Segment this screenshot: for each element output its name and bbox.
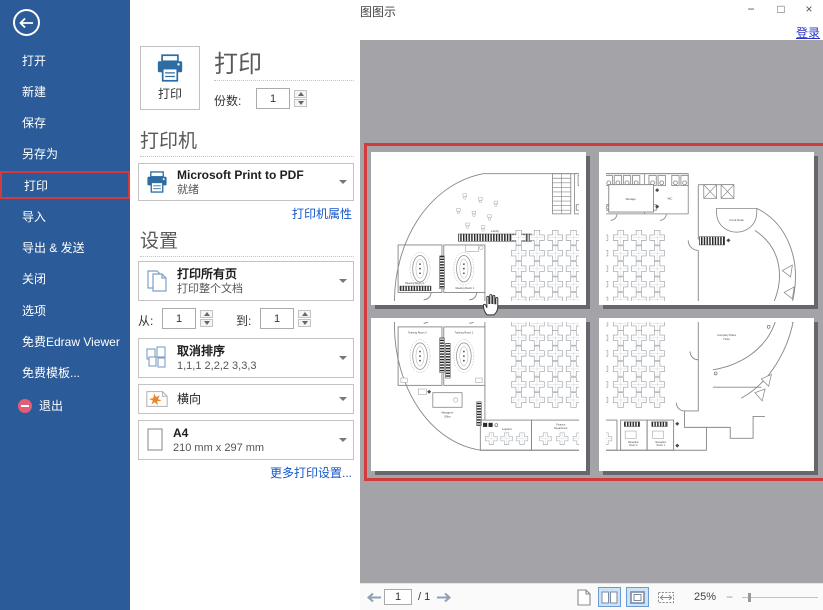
- previous-page-button[interactable]: [366, 590, 382, 608]
- chevron-down-icon: [339, 279, 347, 283]
- fit-page-icon: [657, 591, 675, 604]
- zoom-out-button[interactable]: −: [726, 590, 733, 604]
- printer-name: Microsoft Print to PDF: [177, 168, 331, 183]
- separator: [140, 256, 354, 257]
- copies-stepper: [256, 88, 307, 109]
- printer-status: 就绪: [177, 183, 331, 197]
- printer-properties-link[interactable]: 打印机属性: [292, 205, 352, 222]
- sidebar-item-options[interactable]: 选项: [0, 298, 130, 326]
- collate-select[interactable]: 取消排序 1,1,1 2,2,2 3,3,3: [138, 338, 354, 378]
- back-arrow-icon: [19, 17, 34, 29]
- from-stepper: [162, 308, 213, 329]
- single-page-view-button[interactable]: [626, 587, 649, 607]
- print-heading: 打印: [214, 44, 262, 79]
- page-range-sub: 打印整个文档: [177, 282, 331, 296]
- preview-page-3[interactable]: [371, 318, 586, 471]
- single-page-icon: [630, 591, 645, 604]
- floor-plan-page-1: [378, 156, 579, 301]
- sidebar-item-free-templates[interactable]: 免费模板...: [0, 360, 130, 388]
- copies-input[interactable]: [256, 88, 290, 109]
- floor-plan-page-4: [606, 322, 807, 467]
- separator: [140, 156, 354, 157]
- copies-label: 份数:: [214, 92, 241, 109]
- sidebar-item-save[interactable]: 保存: [0, 110, 130, 138]
- maximize-button[interactable]: □: [769, 1, 793, 18]
- preview-page-2[interactable]: [599, 152, 814, 305]
- sidebar-item-save-as[interactable]: 另存为: [0, 141, 130, 169]
- left-arrow-icon: [366, 592, 382, 603]
- landscape-icon: [145, 389, 169, 409]
- copies-up-button[interactable]: [294, 90, 307, 98]
- preview-page-1[interactable]: [371, 152, 586, 305]
- printer-icon: [155, 54, 185, 82]
- copies-down-button[interactable]: [294, 99, 307, 107]
- floor-plan-page-3: [378, 322, 579, 467]
- from-down-button[interactable]: [200, 319, 213, 327]
- sidebar-item-close[interactable]: 关闭: [0, 266, 130, 294]
- page-icon: [577, 589, 591, 606]
- preview-page-4[interactable]: [599, 318, 814, 471]
- print-button-label: 打印: [158, 85, 182, 102]
- to-down-button[interactable]: [298, 319, 311, 327]
- preview-status-bar: / 1 25%: [360, 583, 823, 610]
- page-number-input[interactable]: [384, 589, 412, 605]
- hand-cursor: [480, 292, 502, 321]
- sidebar-item-open[interactable]: 打开: [0, 48, 130, 76]
- chevron-down-icon: [339, 356, 347, 360]
- edraw-print-window: 打开 新建 保存 另存为 打印 导入 导出 & 发送 关闭 选项 免费Edraw…: [0, 0, 823, 610]
- exit-label: 退出: [39, 393, 63, 419]
- chevron-down-icon: [339, 180, 347, 184]
- print-preview-canvas[interactable]: [360, 40, 823, 583]
- from-input[interactable]: [162, 308, 196, 329]
- orientation-value: 横向: [177, 392, 331, 407]
- collate-title: 取消排序: [177, 344, 331, 359]
- page-total-label: / 1: [418, 591, 430, 603]
- more-print-settings-link[interactable]: 更多打印设置...: [270, 464, 352, 481]
- sidebar-item-import[interactable]: 导入: [0, 204, 130, 232]
- separator: [214, 80, 354, 81]
- collate-sub: 1,1,1 2,2,2 3,3,3: [177, 359, 331, 373]
- printer-heading: 打印机: [140, 126, 197, 153]
- sidebar-item-exit[interactable]: 退出: [0, 392, 130, 420]
- sidebar-item-new[interactable]: 新建: [0, 79, 130, 107]
- zoom-slider[interactable]: [742, 597, 818, 598]
- right-arrow-icon: [436, 592, 452, 603]
- printer-small-icon: [145, 171, 169, 193]
- zoom-slider-thumb[interactable]: [748, 593, 751, 602]
- multi-page-view-button[interactable]: [598, 587, 621, 607]
- exit-icon: [18, 399, 32, 413]
- print-button[interactable]: 打印: [140, 46, 200, 110]
- sidebar-item-print[interactable]: 打印: [0, 171, 130, 199]
- paper-sub: 210 mm x 297 mm: [173, 441, 331, 455]
- to-stepper: [260, 308, 311, 329]
- login-link[interactable]: 登录: [796, 24, 820, 41]
- fit-to-window-button[interactable]: [654, 587, 677, 607]
- next-page-button[interactable]: [436, 590, 452, 608]
- collate-icon: [145, 345, 169, 371]
- pages-icon: [145, 268, 169, 294]
- page-range-select[interactable]: 打印所有页 打印整个文档: [138, 261, 354, 301]
- floor-plan-page-2: [606, 156, 807, 301]
- chevron-down-icon: [339, 397, 347, 401]
- print-panel: 打印 打印 份数: 打印机 Microsoft Print to PDF: [130, 0, 360, 610]
- new-page-view-button[interactable]: [572, 587, 595, 607]
- two-page-icon: [601, 591, 618, 604]
- minimize-button[interactable]: −: [739, 1, 763, 18]
- paper-title: A4: [173, 426, 331, 441]
- settings-heading: 设置: [140, 226, 178, 253]
- close-button[interactable]: ×: [797, 1, 821, 18]
- from-label: 从:: [138, 312, 153, 329]
- sidebar-item-free-viewer[interactable]: 免费Edraw Viewer: [0, 329, 130, 357]
- printer-select[interactable]: Microsoft Print to PDF 就绪: [138, 163, 354, 201]
- page-range-title: 打印所有页: [177, 267, 331, 282]
- backstage-sidebar: 打开 新建 保存 另存为 打印 导入 导出 & 发送 关闭 选项 免费Edraw…: [0, 0, 130, 610]
- orientation-select[interactable]: 横向: [138, 384, 354, 414]
- to-input[interactable]: [260, 308, 294, 329]
- paper-icon: [145, 427, 165, 453]
- back-button[interactable]: [13, 9, 40, 36]
- paper-size-select[interactable]: A4 210 mm x 297 mm: [138, 420, 354, 460]
- to-up-button[interactable]: [298, 310, 311, 318]
- from-up-button[interactable]: [200, 310, 213, 318]
- to-label: 到:: [236, 312, 251, 329]
- zoom-level-label: 25%: [694, 591, 716, 603]
- chevron-down-icon: [339, 438, 347, 442]
- sidebar-item-export-send[interactable]: 导出 & 发送: [0, 235, 130, 263]
